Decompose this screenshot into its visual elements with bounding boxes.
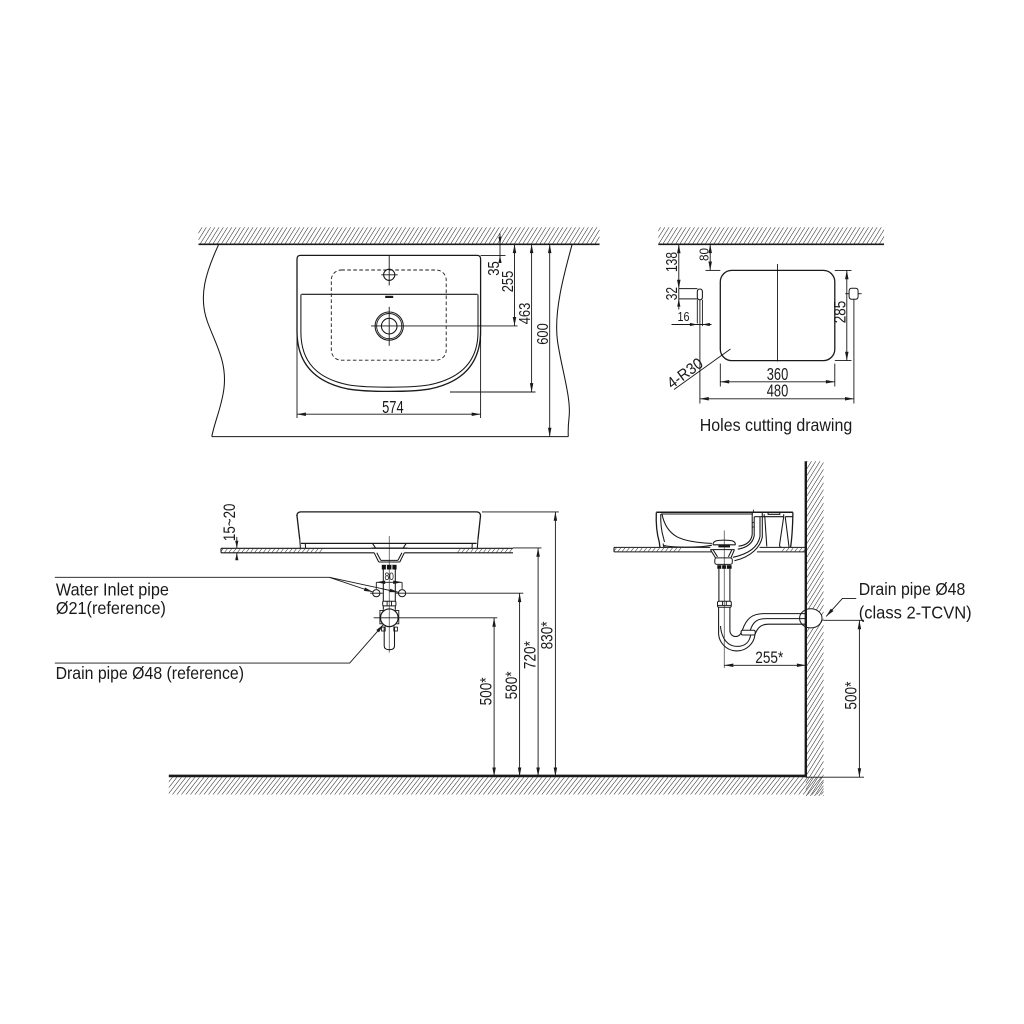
svg-text:16: 16 [678,309,690,324]
svg-text:15~20: 15~20 [220,504,239,542]
svg-text:574: 574 [382,397,404,417]
svg-text:138: 138 [664,252,681,272]
svg-text:Drain pipe Ø48 (reference): Drain pipe Ø48 (reference) [56,663,244,683]
svg-text:500*: 500* [476,677,495,705]
svg-text:500*: 500* [842,681,861,709]
svg-text:255: 255 [500,271,517,293]
svg-text:Ø21(reference): Ø21(reference) [56,598,166,618]
svg-text:Water Inlet pipe: Water Inlet pipe [56,579,169,599]
svg-text:32: 32 [664,287,681,300]
svg-text:Holes cutting drawing: Holes cutting drawing [700,415,852,435]
svg-text:Drain pipe Ø48: Drain pipe Ø48 [859,579,966,599]
svg-text:463: 463 [517,303,534,325]
svg-text:580*: 580* [502,671,521,699]
svg-text:480: 480 [767,381,789,401]
svg-text:600: 600 [535,323,552,345]
svg-text:830*: 830* [538,621,557,649]
svg-text:255*: 255* [755,648,783,667]
svg-text:720*: 720* [520,641,539,669]
svg-text:(class 2-TCVN): (class 2-TCVN) [859,602,972,622]
svg-text:285: 285 [831,301,850,324]
svg-text:80: 80 [697,248,712,261]
